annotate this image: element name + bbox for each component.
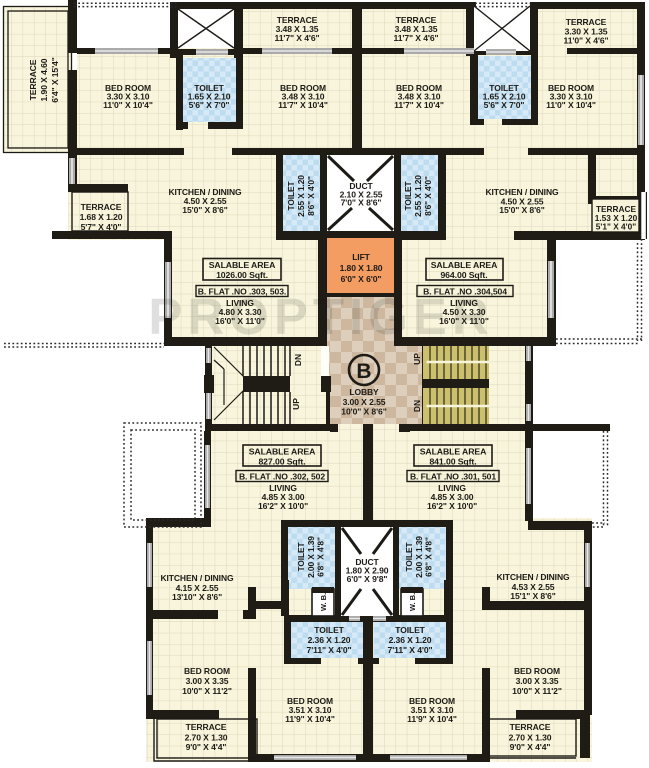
- svg-text:2.55 X 1.20: 2.55 X 1.20: [413, 175, 423, 217]
- svg-text:5'6" X 7'0": 5'6" X 7'0": [189, 100, 230, 110]
- svg-text:16'0" X 11'0": 16'0" X 11'0": [215, 316, 265, 326]
- svg-text:B. FLAT .NO .301, 501: B. FLAT .NO .301, 501: [410, 472, 496, 482]
- svg-text:2.36 X 1.20: 2.36 X 1.20: [308, 635, 351, 645]
- svg-text:SALABLE AREA: SALABLE AREA: [431, 260, 498, 270]
- svg-text:16'2" X 10'0": 16'2" X 10'0": [258, 501, 308, 511]
- svg-text:11'7" X 4'6": 11'7" X 4'6": [394, 33, 439, 43]
- svg-text:10'0" X 11'2": 10'0" X 11'2": [182, 686, 232, 696]
- svg-text:1.68 X 1.20: 1.68 X 1.20: [80, 212, 123, 222]
- svg-text:SALABLE AREA: SALABLE AREA: [209, 260, 276, 270]
- svg-text:TOILET: TOILET: [403, 181, 413, 211]
- svg-text:B. FLAT .NO .302, 502: B. FLAT .NO .302, 502: [239, 472, 325, 482]
- svg-text:2.36 X 1.20: 2.36 X 1.20: [389, 635, 432, 645]
- svg-text:841.00 Sqft.: 841.00 Sqft.: [429, 457, 476, 467]
- svg-text:TERRACE: TERRACE: [81, 202, 122, 212]
- svg-text:TOILET: TOILET: [395, 625, 425, 635]
- svg-text:9'0" X 4'4": 9'0" X 4'4": [186, 742, 227, 752]
- svg-text:TOILET: TOILET: [314, 625, 344, 635]
- svg-text:LOBBY: LOBBY: [349, 387, 379, 397]
- svg-text:827.00 Sqft.: 827.00 Sqft.: [258, 457, 305, 467]
- svg-text:TOILET: TOILET: [404, 542, 414, 572]
- svg-text:11'9" X 10'4": 11'9" X 10'4": [285, 714, 335, 724]
- svg-text:7'0" X 8'6": 7'0" X 8'6": [341, 198, 382, 208]
- svg-text:7'11" X 4'0": 7'11" X 4'0": [388, 645, 433, 655]
- svg-text:1.80 X 1.80: 1.80 X 1.80: [340, 263, 383, 273]
- svg-text:DN: DN: [293, 354, 303, 366]
- svg-text:15'0" X 8'6": 15'0" X 8'6": [182, 205, 227, 215]
- svg-text:B. FLAT .NO .303, 503.: B. FLAT .NO .303, 503.: [198, 287, 286, 297]
- svg-text:6'0" X 9'8": 6'0" X 9'8": [347, 574, 388, 584]
- svg-text:BED ROOM: BED ROOM: [514, 666, 560, 676]
- svg-text:2.70 X 1.30: 2.70 X 1.30: [509, 733, 552, 743]
- svg-text:TERRACE: TERRACE: [186, 722, 227, 732]
- svg-text:8'6" X 4'0": 8'6" X 4'0": [423, 176, 433, 216]
- svg-text:15'1" X 8'6": 15'1" X 8'6": [510, 591, 555, 601]
- svg-text:6'0" X 6'0": 6'0" X 6'0": [341, 274, 382, 284]
- svg-text:W. B.: W. B.: [408, 593, 417, 611]
- svg-text:11'0" X 10'4": 11'0" X 10'4": [546, 100, 596, 110]
- svg-text:5'6" X 7'0": 5'6" X 7'0": [484, 100, 525, 110]
- svg-text:9'0" X 4'4": 9'0" X 4'4": [510, 742, 551, 752]
- svg-text:3.00 X 3.35: 3.00 X 3.35: [186, 676, 229, 686]
- svg-text:5'7" X 4'0": 5'7" X 4'0": [81, 222, 122, 232]
- svg-text:KITCHEN / DINING: KITCHEN / DINING: [160, 573, 234, 583]
- svg-text:11'7" X 10'4": 11'7" X 10'4": [278, 100, 328, 110]
- svg-text:7'11" X 4'0": 7'11" X 4'0": [307, 645, 352, 655]
- svg-text:2.70 X 1.30: 2.70 X 1.30: [185, 733, 228, 743]
- svg-text:B. FLAT .NO .304,504: B. FLAT .NO .304,504: [423, 287, 507, 297]
- svg-text:KITCHEN / DINING: KITCHEN / DINING: [496, 572, 570, 582]
- svg-text:10'0" X 11'2": 10'0" X 11'2": [512, 686, 562, 696]
- svg-text:2.00 X 1.39: 2.00 X 1.39: [414, 536, 424, 578]
- svg-text:6'8" X 4'8": 6'8" X 4'8": [424, 537, 434, 577]
- svg-text:11'0" X 4'6": 11'0" X 4'6": [564, 36, 609, 46]
- svg-text:11'7" X 10'4": 11'7" X 10'4": [394, 100, 444, 110]
- svg-text:2.55 X 1.20: 2.55 X 1.20: [296, 175, 306, 217]
- svg-text:11'0" X 10'4": 11'0" X 10'4": [103, 100, 153, 110]
- svg-text:SALABLE AREA: SALABLE AREA: [249, 447, 316, 457]
- svg-text:BED ROOM: BED ROOM: [184, 666, 230, 676]
- svg-text:UP: UP: [291, 398, 301, 410]
- svg-text:16'2" X 10'0": 16'2" X 10'0": [427, 501, 477, 511]
- svg-text:3.00 X 3.35: 3.00 X 3.35: [516, 676, 559, 686]
- svg-text:964.00 Sqft.: 964.00 Sqft.: [440, 270, 487, 280]
- svg-text:6'8" X 4'8": 6'8" X 4'8": [316, 537, 326, 577]
- svg-text:10'0" X 8'6": 10'0" X 8'6": [341, 407, 386, 417]
- svg-text:DN: DN: [412, 400, 422, 412]
- svg-text:11'9" X 10'4": 11'9" X 10'4": [407, 714, 457, 724]
- svg-text:13'10" X 8'6": 13'10" X 8'6": [172, 592, 222, 602]
- svg-text:TERRACE: TERRACE: [510, 722, 551, 732]
- svg-text:TERRACE: TERRACE: [28, 59, 38, 100]
- svg-text:16'0" X 11'0": 16'0" X 11'0": [439, 316, 489, 326]
- svg-text:W. B.: W. B.: [319, 593, 328, 611]
- svg-text:UP: UP: [412, 353, 422, 365]
- svg-text:6'4" X 15'4": 6'4" X 15'4": [50, 57, 60, 102]
- svg-text:LIFT: LIFT: [352, 252, 370, 262]
- svg-text:1.90 X 4.60: 1.90 X 4.60: [39, 58, 49, 101]
- svg-text:3.00 X 2.55: 3.00 X 2.55: [343, 397, 386, 407]
- svg-text:11'7" X 4'6": 11'7" X 4'6": [275, 33, 320, 43]
- svg-text:TOILET: TOILET: [286, 181, 296, 211]
- svg-text:15'0" X 8'6": 15'0" X 8'6": [499, 205, 544, 215]
- svg-text:5'1" X 4'0": 5'1" X 4'0": [596, 222, 636, 232]
- svg-text:8'6" X 4'0": 8'6" X 4'0": [306, 176, 316, 216]
- svg-text:TERRACE: TERRACE: [566, 17, 607, 27]
- svg-text:B: B: [356, 360, 371, 383]
- svg-text:KITCHEN / DINING: KITCHEN / DINING: [485, 187, 559, 197]
- svg-text:1026.00 Sqft.: 1026.00 Sqft.: [216, 270, 268, 280]
- svg-text:2.00 X 1.39: 2.00 X 1.39: [306, 536, 316, 578]
- svg-text:TOILET: TOILET: [296, 542, 306, 572]
- svg-text:SALABLE AREA: SALABLE AREA: [420, 447, 487, 457]
